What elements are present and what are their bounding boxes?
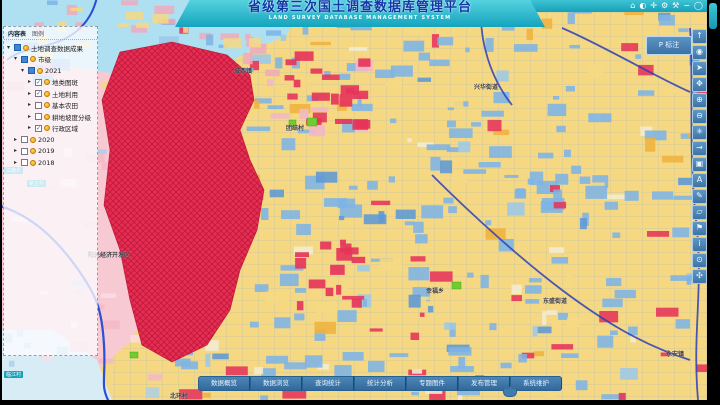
home-icon[interactable]: ⌂ [630, 2, 635, 10]
layer-icon [44, 125, 50, 131]
flag-icon[interactable]: ⚑ [692, 221, 707, 236]
side-panel-handle[interactable] [709, 3, 717, 29]
tree-row[interactable]: ▸耕地坡度分级 [5, 111, 96, 123]
tools-icon[interactable]: ⚒ [672, 2, 679, 10]
layer-checkbox[interactable] [21, 159, 28, 166]
locate-icon[interactable]: ✛ [650, 2, 657, 10]
module-button[interactable]: 统计分析 [354, 376, 406, 391]
tree-row[interactable]: ▸✓行政区域 [5, 123, 96, 135]
expand-icon[interactable]: ▸ [28, 125, 33, 131]
tree-node-label[interactable]: 行政区域 [52, 123, 78, 133]
full-extent-icon[interactable]: ◉ [692, 45, 707, 60]
tree-node-label[interactable]: 土地利用 [52, 89, 78, 99]
expand-icon[interactable]: ▸ [14, 137, 19, 143]
tree-row[interactable]: ▸2018 [5, 157, 96, 169]
layer-icon [30, 56, 36, 62]
app-subtitle: LAND SURVEY DATABASE MANAGEMENT SYSTEM [175, 15, 545, 21]
label-icon[interactable]: A [692, 173, 707, 188]
share-network-icon[interactable]: ✣ [692, 269, 707, 284]
layer-panel-tabs: 内容表图例 [4, 27, 97, 40]
tree-node-label[interactable]: 2018 [38, 159, 55, 167]
pan-up-icon[interactable]: ↑ [692, 29, 707, 44]
layer-icon [30, 137, 36, 143]
collapse-icon[interactable]: ▾ [7, 45, 12, 51]
expand-icon[interactable]: ▸ [28, 114, 33, 120]
pan-hand-icon[interactable]: ✥ [692, 77, 707, 92]
layer-icon [44, 79, 50, 85]
toolbar-collapse-button[interactable]: ˇ [503, 389, 517, 397]
tree-row[interactable]: ▸2020 [5, 134, 96, 146]
map-viewport[interactable]: 城西镇兴华街道团结村阳光经济开发区幸福乡东盛街道永安镇北环村绕城高速江南乡新立村… [2, 0, 707, 400]
settings-gear-icon[interactable]: ⚙ [661, 2, 668, 10]
tree-row[interactable]: ▾土地调查数据成果 [5, 42, 96, 54]
module-button[interactable]: 查询统计 [302, 376, 354, 391]
query-icon[interactable]: ⊙ [692, 253, 707, 268]
group-layer-icon [28, 67, 35, 74]
layer-checkbox[interactable] [21, 136, 28, 143]
layer-checkbox[interactable] [21, 148, 28, 155]
about-icon[interactable]: ◯ [694, 2, 703, 10]
tree-row[interactable]: ▸2019 [5, 146, 96, 158]
layer-panel: 内容表图例 ▾土地调查数据成果▾市级▾2021▸✓地类图斑▸✓土地利用▸基本农田… [3, 26, 98, 356]
module-button[interactable]: 数据浏览 [250, 376, 302, 391]
zoom-out-icon[interactable]: ⊖ [692, 109, 707, 124]
layer-icon [30, 148, 36, 154]
tree-node-label[interactable]: 2020 [38, 136, 55, 144]
tree-row[interactable]: ▸✓地类图斑 [5, 77, 96, 89]
annotate-button[interactable]: P 标注 [646, 36, 692, 55]
select-cursor-icon[interactable]: ➤ [692, 61, 707, 76]
map-tools-toolbar: ↑◉➤✥⊕⊖✳→▣A✎▱⚑i⊙✣ [692, 29, 707, 284]
next-extent-icon[interactable]: → [692, 141, 707, 156]
previous-extent-icon[interactable]: ✳ [692, 125, 707, 140]
map-canvas[interactable] [2, 0, 707, 400]
layer-icon [30, 160, 36, 166]
tree-row[interactable]: ▸✓土地利用 [5, 88, 96, 100]
app-banner: 省级第三次国土调查数据库管理平台 LAND SURVEY DATABASE MA… [175, 0, 545, 27]
layer-checkbox[interactable] [35, 102, 42, 109]
module-button[interactable]: 专题图件 [406, 376, 458, 391]
tree-row[interactable]: ▸基本农田 [5, 100, 96, 112]
group-layer-icon [14, 44, 21, 51]
app-window: 城西镇兴华街道团结村阳光经济开发区幸福乡东盛街道永安镇北环村绕城高速江南乡新立村… [0, 0, 720, 405]
layer-icon [23, 45, 29, 51]
panel-tab-contents[interactable]: 内容表 [8, 29, 26, 38]
collapse-icon[interactable]: ▾ [14, 56, 19, 62]
layer-checkbox[interactable]: ✓ [35, 125, 42, 132]
identify-icon[interactable]: ▣ [692, 157, 707, 172]
expand-icon[interactable]: ▸ [14, 160, 19, 166]
tree-node-label[interactable]: 2019 [38, 147, 55, 155]
tree-node-label[interactable]: 基本农田 [52, 100, 78, 110]
layer-checkbox[interactable] [35, 113, 42, 120]
module-button[interactable]: 数据概览 [198, 376, 250, 391]
info-icon[interactable]: i [692, 237, 707, 252]
expand-icon[interactable]: ▸ [28, 91, 33, 97]
group-layer-icon [21, 56, 28, 63]
tree-row[interactable]: ▾2021 [5, 65, 96, 77]
layer-checkbox[interactable]: ✓ [35, 79, 42, 86]
tree-node-label[interactable]: 土地调查数据成果 [31, 43, 83, 53]
layer-checkbox[interactable]: ✓ [35, 90, 42, 97]
header-icon-row: ⌂◐✛⚙⚒−◯ [630, 0, 703, 12]
tree-node-label[interactable]: 市级 [38, 54, 51, 64]
zoom-in-icon[interactable]: ⊕ [692, 93, 707, 108]
layer-icon [44, 102, 50, 108]
expand-icon[interactable]: ▸ [28, 79, 33, 85]
globe-icon[interactable]: ◐ [639, 2, 646, 10]
tree-node-label[interactable]: 2021 [45, 67, 62, 75]
layer-icon [44, 91, 50, 97]
panel-tab-legend[interactable]: 图例 [32, 29, 44, 38]
sketch-pencil-icon[interactable]: ✎ [692, 189, 707, 204]
layer-icon [37, 68, 43, 74]
layer-tree: ▾土地调查数据成果▾市级▾2021▸✓地类图斑▸✓土地利用▸基本农田▸耕地坡度分… [4, 40, 97, 171]
minimize-icon[interactable]: − [683, 2, 690, 10]
expand-icon[interactable]: ▸ [14, 148, 19, 154]
app-title: 省级第三次国土调查数据库管理平台 [175, 0, 545, 15]
layer-icon [44, 114, 50, 120]
edit-polygon-icon[interactable]: ▱ [692, 205, 707, 220]
tree-node-label[interactable]: 耕地坡度分级 [52, 112, 91, 122]
tree-row[interactable]: ▾市级 [5, 54, 96, 66]
collapse-icon[interactable]: ▾ [21, 68, 26, 74]
tree-node-label[interactable]: 地类图斑 [52, 77, 78, 87]
module-button[interactable]: 系统维护 [510, 376, 562, 391]
expand-icon[interactable]: ▸ [28, 102, 33, 108]
